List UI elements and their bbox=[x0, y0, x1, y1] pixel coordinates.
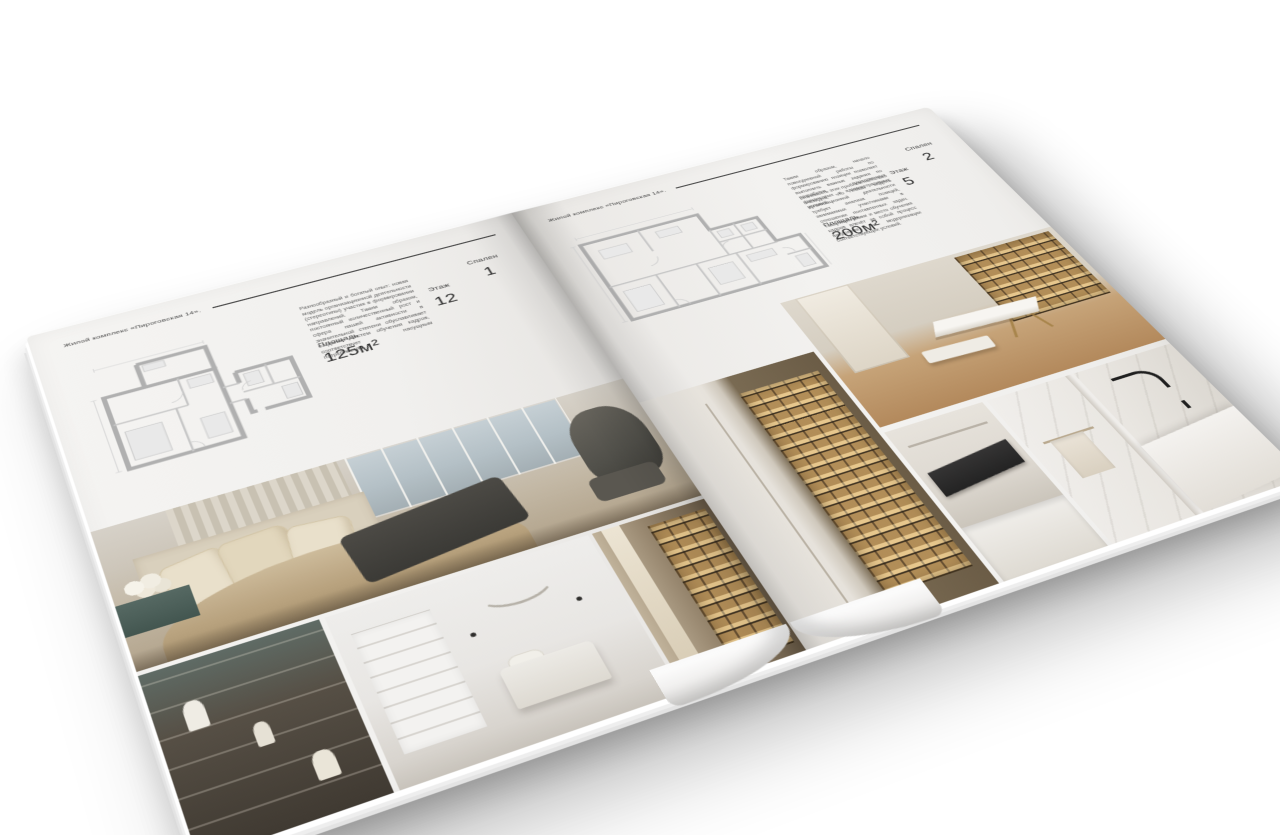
floor-plan-125 bbox=[73, 317, 336, 489]
right-stat-bedrooms: Спален 2 bbox=[903, 140, 947, 165]
guest-bedroom-bench bbox=[498, 639, 612, 709]
shelf-vase bbox=[309, 746, 343, 781]
bathroom-faucet bbox=[1110, 366, 1170, 399]
floor-value: 12 bbox=[431, 290, 460, 309]
shelf-vase bbox=[251, 718, 277, 747]
wall-sconce bbox=[576, 595, 583, 601]
brochure-spread: Жилой комплекс «Пироговская 14». bbox=[26, 106, 1280, 835]
kitchen-cooktop bbox=[927, 438, 1024, 496]
left-stat-bedrooms: Спален 1 bbox=[465, 252, 509, 281]
left-stat-floor: Этаж 12 bbox=[426, 281, 461, 308]
scene-3d: Жилой комплекс «Пироговская 14». bbox=[0, 0, 1280, 835]
bathroom-faucet-spout bbox=[1181, 399, 1192, 407]
guest-bedroom-garland bbox=[470, 563, 558, 615]
kitchen-shelf bbox=[908, 421, 989, 448]
study-bench bbox=[921, 335, 997, 363]
bathroom-marble-counter bbox=[1141, 405, 1280, 512]
bathroom-towel bbox=[1049, 431, 1115, 478]
floor-value: 5 bbox=[894, 173, 923, 189]
guest-bedroom-shelving bbox=[351, 609, 488, 754]
wall-sconce bbox=[470, 631, 477, 637]
scene-background: Жилой комплекс «Пироговская 14». bbox=[0, 0, 1280, 835]
shelf-vase bbox=[180, 697, 211, 732]
